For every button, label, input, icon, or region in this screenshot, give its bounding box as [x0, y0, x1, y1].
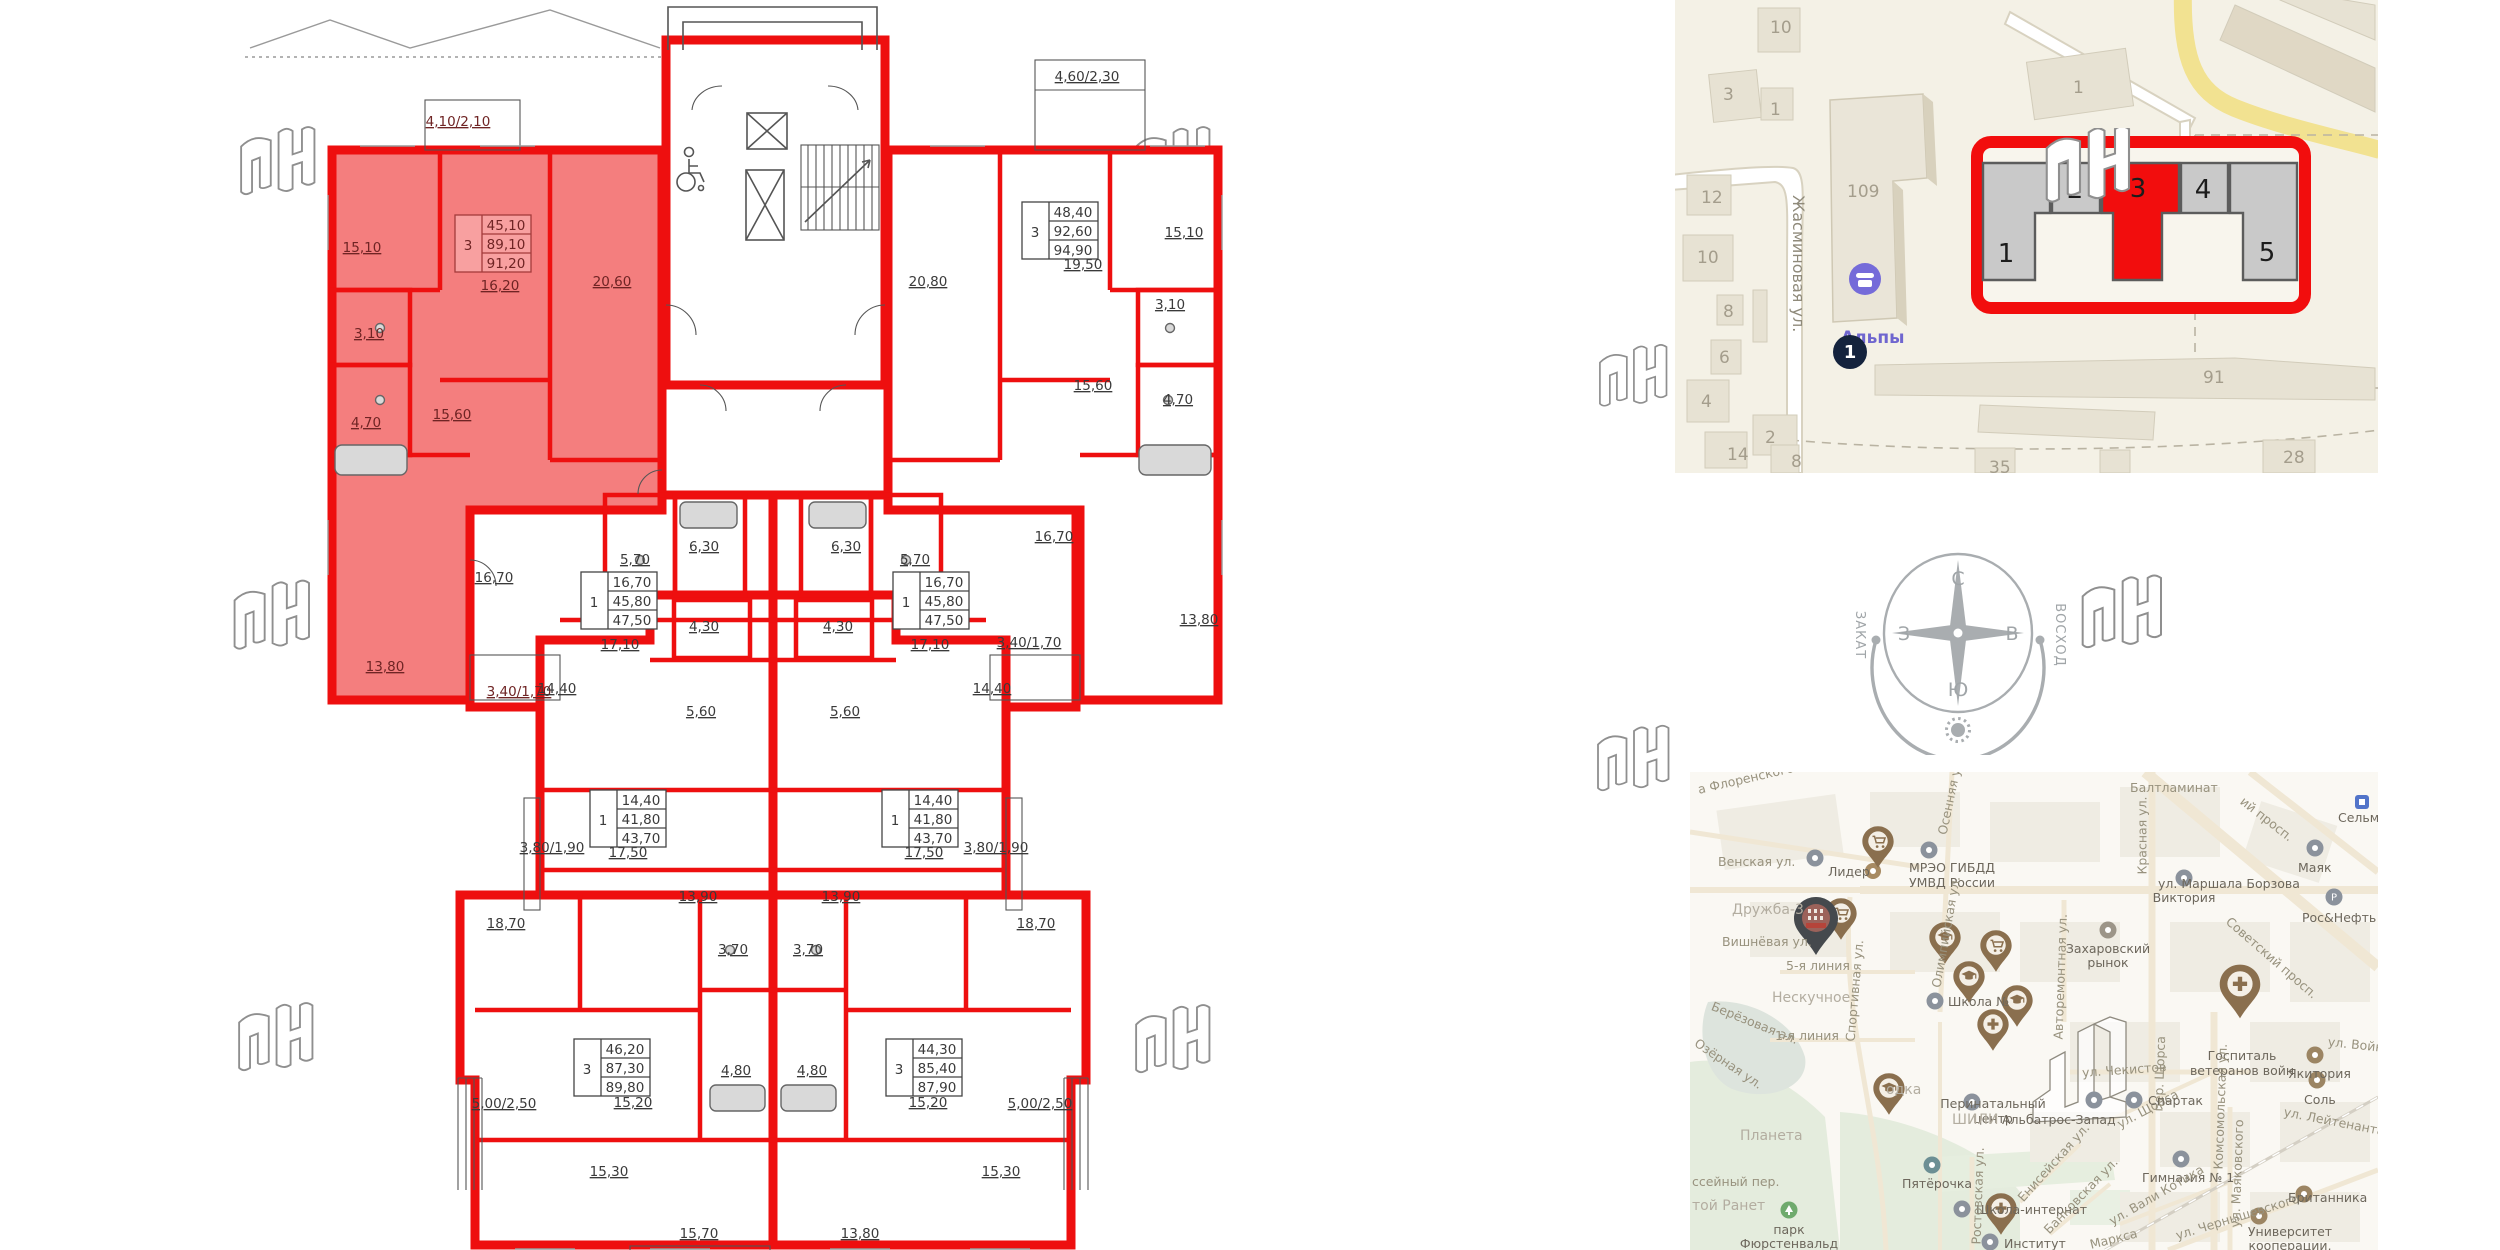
svg-text:45,80: 45,80	[613, 594, 652, 610]
room-area: 15,30	[982, 1164, 1021, 1180]
school-poi-icon	[1927, 993, 1944, 1010]
compass-north: С	[1951, 568, 1964, 590]
compass: С В З Ю ЗАКАТ ВОСХОД	[1840, 540, 2180, 755]
svg-text:89,10: 89,10	[487, 237, 526, 253]
medical-pin[interactable]	[2220, 965, 2261, 1019]
svg-text:3: 3	[583, 1062, 592, 1078]
place-label: Соль	[2304, 1092, 2336, 1107]
place-label: Университет	[2248, 1224, 2332, 1239]
svg-text:3: 3	[895, 1062, 904, 1078]
room-area: 3,10	[354, 326, 384, 342]
svg-text:P: P	[2331, 893, 2337, 904]
svg-text:89,80: 89,80	[606, 1080, 645, 1096]
area-label: Нескучное	[1772, 990, 1850, 1006]
room-area: 5,70	[900, 552, 930, 568]
svg-text:94,90: 94,90	[1054, 243, 1093, 259]
svg-text:1: 1	[902, 595, 911, 611]
section-label: 5	[2259, 238, 2276, 268]
svg-text:1: 1	[590, 595, 599, 611]
svg-text:45,80: 45,80	[925, 594, 964, 610]
room-area: 17,10	[911, 637, 950, 653]
site-map[interactable]: 10 3 1 1 12 10 8 6 4 2 109 91 14 8 35 28…	[1675, 0, 2378, 473]
room-area: 13,80	[366, 659, 405, 675]
svg-text:43,70: 43,70	[622, 831, 661, 847]
place-label: Рос&Нефть	[2302, 910, 2376, 925]
map-building-number: 1	[1770, 100, 1781, 120]
compass-south: Ю	[1948, 679, 1969, 701]
roof-outline	[245, 10, 662, 57]
ln-logo-icon	[1585, 710, 1680, 800]
paw-poi-icon	[1807, 850, 1824, 867]
street-label: Венская ул.	[1718, 854, 1795, 869]
apartment-info-table: 3 44,30 85,40 87,90	[886, 1039, 962, 1096]
room-area: 15,10	[1165, 225, 1204, 241]
svg-text:92,60: 92,60	[1054, 224, 1093, 240]
place-label: Альбатрос-Запад	[2002, 1112, 2116, 1127]
gymnasium-poi-icon	[2173, 1151, 2190, 1168]
svg-text:16,70: 16,70	[613, 575, 652, 591]
ln-logo-icon	[1136, 1005, 1209, 1072]
market-poi-icon	[2100, 922, 2117, 939]
room-area: 20,60	[593, 274, 632, 290]
map-building-number: 8	[1791, 452, 1802, 472]
svg-text:87,90: 87,90	[918, 1080, 957, 1096]
room-area: 14,40	[973, 681, 1012, 697]
room-area: 15,60	[1074, 378, 1113, 394]
svg-text:3: 3	[464, 238, 473, 254]
map-building-number: 35	[1989, 458, 2011, 473]
place-label: Лидер	[1828, 864, 1870, 879]
ln-logo-icon	[239, 1003, 312, 1070]
place-label: МРЭО ГИБДД	[1909, 860, 1995, 875]
sunset-label: ЗАКАТ	[1852, 611, 1867, 659]
room-area: 4,30	[823, 619, 853, 635]
room-area: 5,70	[620, 552, 650, 568]
room-area: 18,70	[487, 916, 526, 932]
compass-west: З	[1898, 623, 1910, 645]
svg-text:47,50: 47,50	[925, 613, 964, 629]
room-area: 4,80	[797, 1063, 827, 1079]
room-area: 3,40/1,70	[997, 635, 1062, 651]
ln-logo-icon	[2047, 128, 2129, 202]
section-label: 4	[2195, 175, 2212, 205]
svg-text:43,70: 43,70	[914, 831, 953, 847]
room-area: 17,10	[601, 637, 640, 653]
parking-poi-icon: P	[2326, 889, 2343, 906]
map-building-number: 10	[1697, 248, 1719, 268]
place-label: парк	[1773, 1222, 1804, 1237]
map-building-number: 28	[2283, 448, 2305, 468]
svg-text:45,10: 45,10	[487, 218, 526, 234]
area-label: одка	[1886, 1082, 1921, 1098]
room-area: 13,90	[822, 889, 861, 905]
place-label: Перинатальный	[1940, 1096, 2045, 1111]
location-badge[interactable]: 1	[1833, 335, 1867, 369]
place-label: Пятёрочка	[1902, 1176, 1972, 1191]
room-area: 13,80	[1180, 612, 1219, 628]
place-label: Виктория	[2153, 890, 2216, 905]
building-schematic: 1 2 3 4 5	[1970, 128, 2315, 323]
compass-east: В	[2005, 623, 2018, 645]
city-map[interactable]: P	[1690, 772, 2378, 1250]
sunrise-label: ВОСХОД	[2052, 603, 2067, 667]
place-label: Сельма	[2338, 810, 2378, 825]
room-area: 4,10/2,10	[426, 114, 491, 130]
room-area: 4,30	[689, 619, 719, 635]
apartment-info-table: 1 14,40 41,80 43,70	[590, 790, 666, 847]
map-building-number: 14	[1727, 445, 1749, 465]
svg-text:14,40: 14,40	[914, 793, 953, 809]
street-label: ссейный пер.	[1692, 1174, 1779, 1189]
place-label: Институт	[2004, 1236, 2066, 1250]
street-name-zhasminovaya: Жасминовая ул.	[1789, 195, 1808, 332]
svg-text:14,40: 14,40	[622, 793, 661, 809]
room-area: 15,70	[680, 1226, 719, 1242]
place-label: Якитория	[2288, 1066, 2351, 1081]
apartment-info-table: 1 16,70 45,80 47,50	[893, 572, 969, 629]
svg-text:85,40: 85,40	[918, 1061, 957, 1077]
ln-logo-icon	[235, 581, 309, 649]
ln-logo-icon	[1585, 330, 1680, 415]
room-area: 6,30	[831, 539, 861, 555]
street-label: 5-я линия	[1786, 958, 1850, 973]
room-area: 15,60	[433, 407, 472, 423]
svg-text:41,80: 41,80	[914, 812, 953, 828]
place-label: Фюрстенвальд	[1740, 1236, 1838, 1250]
map-building-number: 2	[1765, 428, 1776, 448]
area-label: Планета	[1740, 1128, 1803, 1144]
room-area: 3,80/1,90	[520, 840, 585, 856]
svg-text:41,80: 41,80	[622, 812, 661, 828]
place-label: Британника	[2288, 1190, 2367, 1205]
svg-text:1: 1	[891, 813, 900, 829]
pyaterochka-poi-icon	[1924, 1157, 1941, 1174]
svg-text:47,50: 47,50	[613, 613, 652, 629]
svg-text:46,20: 46,20	[606, 1042, 645, 1058]
yakitoria-poi-icon	[2307, 1047, 2324, 1064]
map-building-number: 10	[1770, 18, 1792, 38]
room-area: 3,10	[1155, 297, 1185, 313]
alpy-poi-icon[interactable]	[1847, 261, 1883, 297]
area-label: Балтламинат	[2130, 780, 2218, 795]
sun-icon	[1947, 719, 1970, 742]
mayak-poi-icon	[2307, 840, 2324, 857]
svg-text:44,30: 44,30	[918, 1042, 957, 1058]
place-label: Спартак	[2148, 1093, 2203, 1108]
map-building-number: 4	[1701, 392, 1712, 412]
room-area: 3,70	[793, 942, 823, 958]
park-poi-icon	[1781, 1202, 1798, 1219]
map-building-number: 8	[1723, 302, 1734, 322]
room-area: 15,10	[343, 240, 382, 256]
stairs-icon	[801, 145, 879, 230]
room-area: 5,00/2,50	[1008, 1096, 1073, 1112]
svg-text:87,30: 87,30	[606, 1061, 645, 1077]
street-label: Красная ул.	[2135, 796, 2150, 874]
street-label: ул. Маршала Борзова	[2158, 876, 2300, 891]
map-building-number: 1	[2073, 78, 2084, 98]
boarding-school-poi-icon	[1954, 1201, 1971, 1218]
room-area: 3,70	[718, 942, 748, 958]
albatros-poi-icon	[2086, 1092, 2103, 1109]
apartment-info-table: 3 45,10 89,10 91,20	[455, 215, 531, 272]
room-area: 16,70	[475, 570, 514, 586]
ln-logo-icon	[241, 127, 314, 194]
svg-text:48,40: 48,40	[1054, 205, 1093, 221]
police-poi-icon	[1921, 842, 1938, 859]
apartment-selector-page: { "colors":{"wall_red":"#ee0f0f","apartm…	[0, 0, 2500, 1250]
apartment-info-table: 1 16,70 45,80 47,50	[581, 572, 657, 629]
room-area: 5,60	[686, 704, 716, 720]
map-building-number: 6	[1719, 348, 1730, 368]
place-label: кооперации,	[2248, 1238, 2331, 1250]
area-label: Дружба-3	[1732, 902, 1804, 918]
apartment-info-table: 3 46,20 87,30 89,80	[574, 1039, 650, 1096]
room-area: 4,70	[1163, 392, 1193, 408]
section-label: 1	[1998, 239, 2015, 269]
svg-text:16,70: 16,70	[925, 575, 964, 591]
room-area: 13,90	[679, 889, 718, 905]
room-area: 5,60	[830, 704, 860, 720]
room-area: 4,60/2,30	[1055, 69, 1120, 85]
place-label: Маяк	[2298, 860, 2332, 875]
room-area: 14,40	[538, 681, 577, 697]
street-label: 1-я линия	[1775, 1028, 1839, 1043]
room-area: 16,20	[481, 278, 520, 294]
selma-poi-icon	[2355, 795, 2369, 809]
institute-poi-icon	[1982, 1234, 1999, 1250]
area-label: ШИЛИ	[1952, 1112, 1998, 1128]
room-area: 15,20	[909, 1095, 948, 1111]
svg-text:91,20: 91,20	[487, 256, 526, 272]
room-area: 4,70	[351, 415, 381, 431]
medical-pin[interactable]	[1977, 1009, 2008, 1050]
area-label: той Ранет	[1692, 1198, 1765, 1214]
room-area: 20,80	[909, 274, 948, 290]
room-area: 6,30	[689, 539, 719, 555]
room-area: 15,20	[614, 1095, 653, 1111]
floor-plan: 15,10 4,10/2,10 16,20 20,60 3,10 4,70 15…	[230, 0, 1270, 1250]
place-label: Школа №	[1948, 994, 2009, 1009]
room-area: 3,80/1,90	[964, 840, 1029, 856]
room-area: 16,70	[1035, 529, 1074, 545]
section-label: 3	[2130, 174, 2147, 204]
apartment-info-table: 3 48,40 92,60 94,90	[1022, 202, 1098, 259]
ln-logo-icon	[2083, 576, 2161, 648]
svg-text:1: 1	[599, 813, 608, 829]
room-area: 13,80	[841, 1226, 880, 1242]
place-label: Захаровский рынок	[2063, 942, 2153, 971]
map-building-number: 12	[1701, 188, 1723, 208]
room-area: 15,30	[590, 1164, 629, 1180]
apartment-info-table: 1 14,40 41,80 43,70	[882, 790, 958, 847]
place-label: ветеранов войн	[2190, 1063, 2294, 1078]
room-area: 18,70	[1017, 916, 1056, 932]
room-area: 4,80	[721, 1063, 751, 1079]
svg-text:3: 3	[1031, 225, 1040, 241]
map-building-number: 91	[2203, 368, 2225, 388]
map-building-number: 3	[1723, 85, 1734, 105]
map-building-number: 109	[1847, 182, 1879, 202]
street-label: Вишнёвая ул.	[1722, 934, 1812, 949]
room-area: 5,00/2,50	[472, 1096, 537, 1112]
